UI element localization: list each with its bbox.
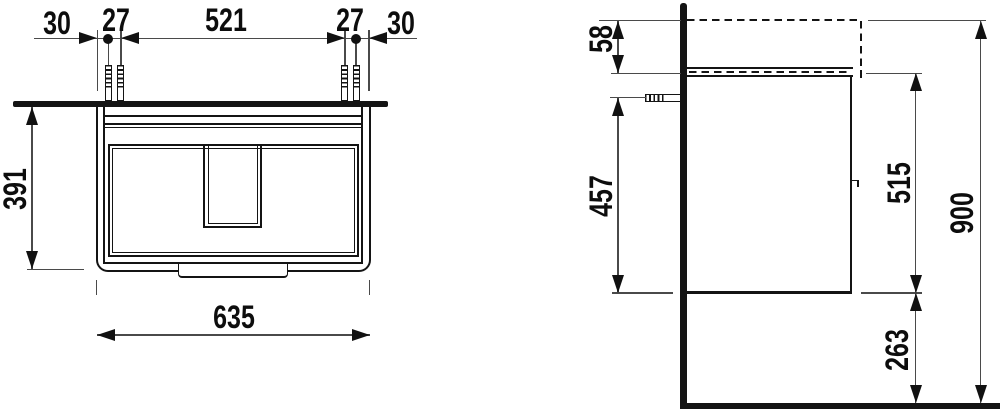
wall-plug-thread <box>105 65 112 88</box>
arrow-515-top <box>910 73 922 91</box>
dim-label-30-right: 30 <box>387 7 415 39</box>
vanity-unit-dimension-drawing: 30 27 521 27 30 391 635 <box>0 0 1000 411</box>
cabinet-bottom-edge <box>687 291 852 294</box>
dim-label-515: 515 <box>883 162 915 204</box>
cabinet-inner-side-right <box>361 107 363 264</box>
cabinet-front-edge <box>850 77 852 294</box>
arrow-30-left <box>79 32 97 44</box>
washbasin-dashed-top <box>687 19 862 21</box>
wall-plug-thread <box>341 65 348 88</box>
washbasin-front-tick <box>860 70 863 79</box>
washbasin-slab-front <box>13 101 388 107</box>
floor-line <box>680 403 1000 409</box>
wall-plug-body <box>664 94 681 102</box>
drawer-gap-line-lower <box>105 127 362 129</box>
arrow-515-bottom <box>910 275 922 293</box>
wall-plug-icon <box>341 65 348 101</box>
dim-label-521: 521 <box>205 4 247 36</box>
countertop-hidden-line <box>689 71 849 73</box>
wall-plug-body <box>341 88 348 101</box>
drawer-gap-line-upper <box>105 123 362 125</box>
arrow-263-bottom <box>910 385 922 403</box>
ext-line-391-bottom <box>27 269 84 270</box>
dim-line-900 <box>980 21 981 403</box>
washbasin-dashed-front <box>860 21 862 71</box>
arrow-635-left <box>97 329 115 341</box>
arrow-900-top <box>975 21 987 39</box>
dim-label-58: 58 <box>585 25 617 53</box>
arrow-58-bottom <box>612 55 624 73</box>
dim-label-27-left: 27 <box>102 4 130 36</box>
dim-label-457: 457 <box>585 175 617 217</box>
dim-label-900: 900 <box>946 192 978 234</box>
arrow-391-bottom <box>26 251 38 269</box>
wall-plug-body <box>117 88 124 101</box>
ext-stub-635-left <box>96 280 97 295</box>
arrow-263-top <box>910 293 922 311</box>
wall-line <box>680 3 687 403</box>
dim-label-27-right: 27 <box>336 4 364 36</box>
bottom-recess <box>178 264 288 278</box>
wall-plug-icon <box>353 65 360 101</box>
wall-plug-icon <box>117 65 124 101</box>
wall-plug-body <box>105 88 112 101</box>
wall-plug-thread <box>117 65 124 88</box>
wall-plug-icon <box>645 94 681 102</box>
wall-plug-thread <box>645 94 664 102</box>
dim-label-635: 635 <box>213 301 255 333</box>
cabinet-inner-side-left <box>103 107 105 264</box>
wall-plug-body <box>353 88 360 101</box>
dim-label-263: 263 <box>881 329 913 371</box>
dim-label-30-left: 30 <box>43 7 71 39</box>
arrow-635-right <box>352 329 370 341</box>
arrow-900-bottom <box>975 385 987 403</box>
arrow-457-bottom <box>612 275 624 293</box>
ext-line-basin-top-right <box>868 20 986 21</box>
arrow-457-top <box>612 98 624 116</box>
dim-label-391: 391 <box>0 168 31 210</box>
ext-stub-635-right <box>369 280 370 295</box>
arrow-30-right <box>369 32 387 44</box>
countertop-bottom-edge <box>687 75 853 77</box>
arrow-391-top <box>26 107 38 125</box>
siphon-cutout-inner <box>208 144 258 224</box>
countertop-top-edge <box>687 67 853 70</box>
cabinet-top-rail <box>105 115 362 118</box>
wall-plug-icon <box>105 65 112 101</box>
drawer-handle-profile-v <box>857 181 859 188</box>
wall-plug-thread <box>353 65 360 88</box>
